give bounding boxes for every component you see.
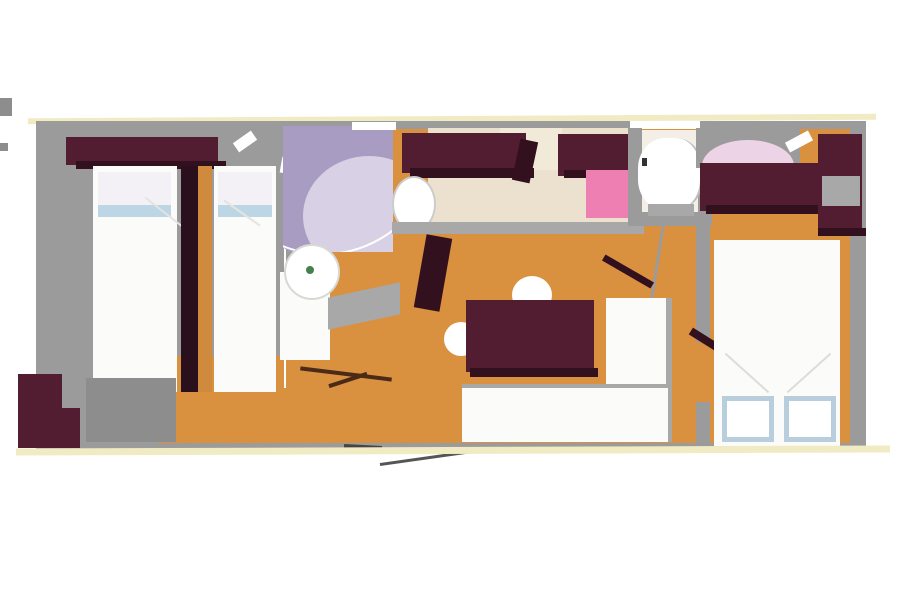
storage-steps-lower [62, 408, 80, 448]
corner-shower [283, 126, 393, 252]
crop-artifact [0, 143, 8, 151]
wardrobe-shelf [822, 176, 860, 206]
pillow-right [784, 396, 836, 442]
bedside-divider-shelf [198, 166, 212, 392]
window-gap [352, 122, 396, 130]
counter-front [392, 222, 644, 234]
bedside-divider [181, 166, 198, 392]
bedroom-wall [696, 224, 710, 342]
crop-artifact [0, 98, 12, 116]
master-wardrobe-1 [700, 163, 822, 211]
bedroom-wall [696, 402, 710, 444]
toilet-base [648, 204, 694, 216]
toilet-hinge [642, 158, 647, 166]
floorplan-image [0, 0, 900, 600]
bench-seat-bottom [462, 388, 668, 442]
table-edge [470, 368, 598, 377]
wardrobe-edge [818, 228, 866, 236]
drain-dot [306, 266, 314, 274]
bench-seat-right [606, 298, 668, 388]
toilet [638, 138, 703, 210]
kitchen-overhead-cabinet-1 [402, 133, 526, 173]
pillow-left [722, 396, 774, 442]
storage-steps [18, 374, 62, 448]
dining-table [466, 300, 594, 372]
wardrobe-edge [706, 205, 828, 214]
grey-step-block [86, 378, 176, 442]
single-bed-1-pillow [98, 172, 171, 206]
